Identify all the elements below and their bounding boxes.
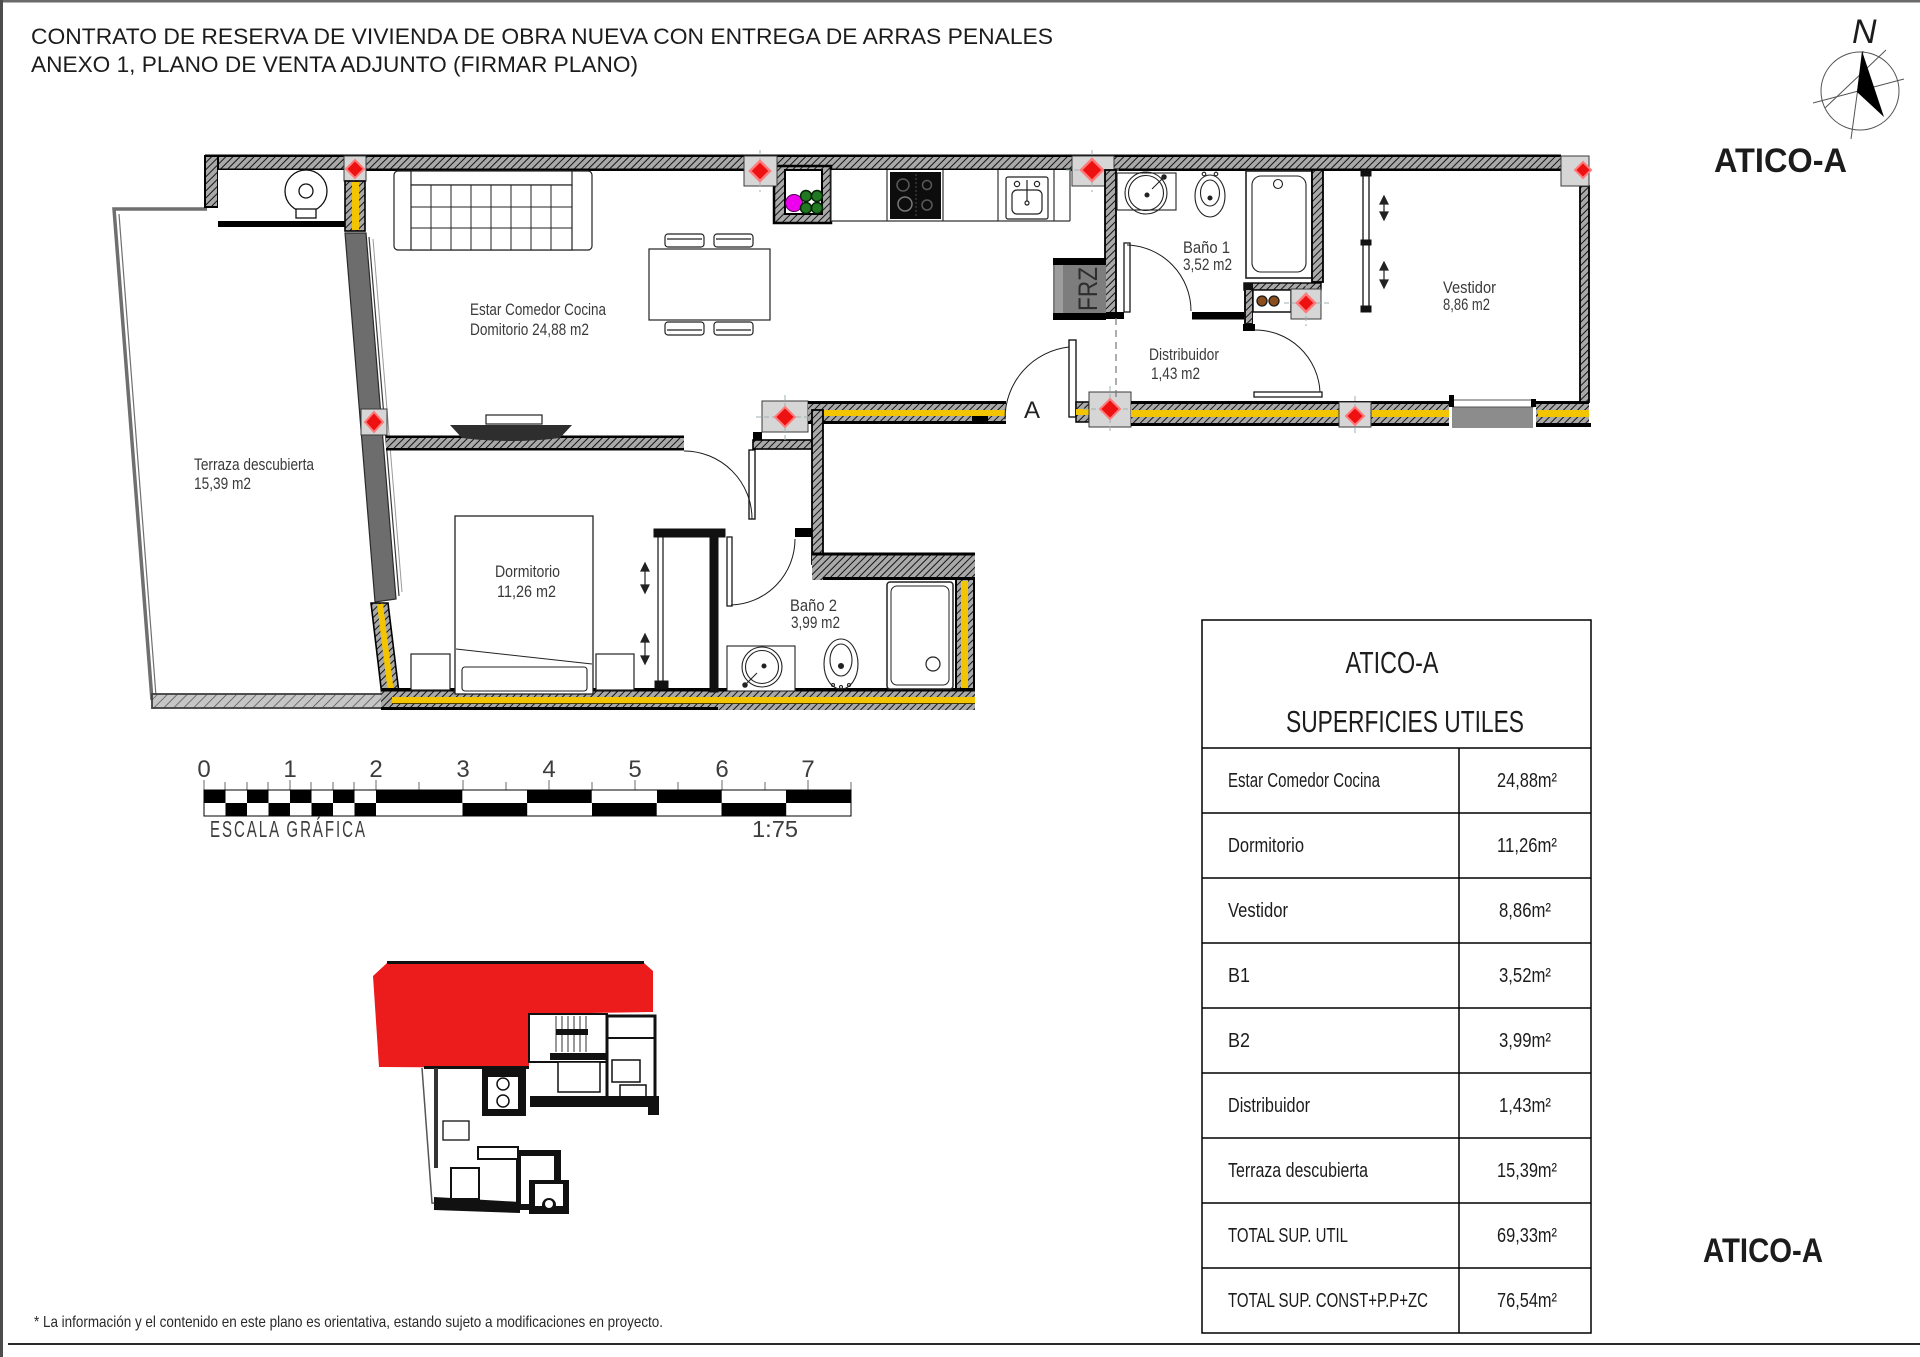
svg-text:B2: B2 <box>1228 1030 1250 1052</box>
svg-text:4: 4 <box>542 756 555 783</box>
svg-text:* La información y el contenid: * La información y el contenido en este … <box>34 1314 663 1331</box>
svg-text:FRZ: FRZ <box>1073 267 1103 311</box>
svg-text:Estar Comedor Cocina: Estar Comedor Cocina <box>1228 770 1381 792</box>
svg-text:Vestidor: Vestidor <box>1228 900 1288 922</box>
svg-text:15,39m²: 15,39m² <box>1497 1160 1557 1182</box>
svg-text:76,54m²: 76,54m² <box>1497 1290 1557 1312</box>
svg-text:15,39 m2: 15,39 m2 <box>194 474 251 493</box>
svg-text:8,86 m2: 8,86 m2 <box>1443 295 1490 314</box>
svg-text:Distribuidor: Distribuidor <box>1228 1095 1310 1117</box>
svg-text:Dormitorio: Dormitorio <box>1228 835 1304 857</box>
svg-text:6: 6 <box>715 756 728 783</box>
svg-text:Estar Comedor Cocina: Estar Comedor Cocina <box>470 300 606 319</box>
svg-text:SUPERFICIES UTILES: SUPERFICIES UTILES <box>1286 704 1524 739</box>
svg-text:3: 3 <box>456 756 469 783</box>
svg-text:TOTAL SUP. UTIL: TOTAL SUP. UTIL <box>1228 1225 1348 1247</box>
svg-text:ANEXO 1, PLANO DE VENTA ADJUNT: ANEXO 1, PLANO DE VENTA ADJUNTO (FIRMAR … <box>31 52 638 77</box>
svg-text:A: A <box>1024 397 1040 424</box>
svg-text:1:75: 1:75 <box>752 816 798 842</box>
svg-text:Terraza descubierta: Terraza descubierta <box>1228 1160 1369 1182</box>
svg-text:3,99m²: 3,99m² <box>1499 1030 1551 1052</box>
svg-text:3,52 m2: 3,52 m2 <box>1183 255 1232 274</box>
svg-text:3,99 m2: 3,99 m2 <box>791 613 840 632</box>
svg-text:ATICO-A: ATICO-A <box>1714 142 1847 180</box>
svg-text:8,86m²: 8,86m² <box>1499 900 1551 922</box>
svg-text:0: 0 <box>197 756 210 783</box>
svg-text:CONTRATO DE RESERVA DE VIVIEND: CONTRATO DE RESERVA DE VIVIENDA DE OBRA … <box>31 24 1053 49</box>
svg-text:TOTAL SUP. CONST+P.P+ZC: TOTAL SUP. CONST+P.P+ZC <box>1228 1290 1428 1312</box>
svg-text:ATICO-A: ATICO-A <box>1703 1232 1823 1270</box>
svg-text:1,43 m2: 1,43 m2 <box>1151 364 1200 383</box>
svg-text:3,52m²: 3,52m² <box>1499 965 1551 987</box>
svg-text:Terraza descubierta: Terraza descubierta <box>194 455 314 474</box>
svg-text:B1: B1 <box>1228 965 1250 987</box>
svg-text:11,26m²: 11,26m² <box>1497 835 1557 857</box>
svg-text:Domitorio 24,88 m2: Domitorio 24,88 m2 <box>470 320 589 339</box>
svg-text:N: N <box>1852 13 1877 51</box>
svg-text:ESCALA GRÁFICA: ESCALA GRÁFICA <box>210 816 367 842</box>
svg-text:2: 2 <box>369 756 382 783</box>
svg-text:ATICO-A: ATICO-A <box>1346 645 1439 680</box>
svg-text:69,33m²: 69,33m² <box>1497 1225 1557 1247</box>
svg-text:24,88m²: 24,88m² <box>1497 770 1557 792</box>
svg-text:5: 5 <box>628 756 641 783</box>
svg-text:7: 7 <box>801 756 814 783</box>
svg-text:Distribuidor: Distribuidor <box>1149 345 1219 364</box>
svg-text:Dormitorio: Dormitorio <box>495 562 560 581</box>
svg-text:1,43m²: 1,43m² <box>1499 1095 1551 1117</box>
svg-text:11,26 m2: 11,26 m2 <box>497 582 556 601</box>
svg-text:1: 1 <box>283 756 296 783</box>
